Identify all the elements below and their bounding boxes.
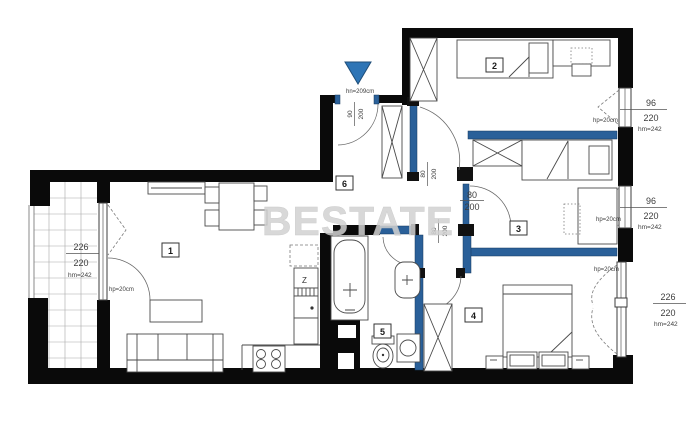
stove	[253, 346, 285, 372]
svg-text:hm=242: hm=242	[638, 224, 662, 231]
balcony-door-arc	[108, 258, 150, 300]
sink-dot	[310, 306, 313, 309]
svg-text:2: 2	[492, 61, 497, 71]
svg-text:6: 6	[342, 179, 347, 189]
wall-right-1	[618, 38, 633, 88]
svg-text:hm=242: hm=242	[68, 272, 92, 279]
bedroom-a-chair	[572, 64, 591, 76]
svg-text:1: 1	[168, 246, 173, 256]
toilet-dot	[382, 354, 384, 356]
entry-jamb-right	[374, 95, 379, 104]
svg-text:200: 200	[358, 108, 365, 119]
wall-top-bedrooms	[402, 28, 633, 38]
bedroom-a-pillow	[529, 43, 548, 73]
living-room-furniture	[127, 182, 267, 372]
sink-cabinet	[294, 296, 318, 318]
bedroom-b-desk	[578, 188, 617, 244]
svg-text:hp=20cm: hp=20cm	[593, 118, 618, 124]
wall-entry-right	[378, 95, 405, 103]
window-right-bottom	[617, 262, 626, 357]
sofa	[127, 334, 223, 372]
wall-top-living	[30, 170, 322, 182]
room-number-bedroom-c: 4	[465, 308, 482, 322]
duct-inset-1	[338, 325, 356, 338]
svg-text:226: 226	[73, 242, 88, 252]
chair-1	[205, 187, 219, 203]
hall-furniture	[382, 106, 402, 178]
watermark-text: BESTATE	[262, 198, 454, 244]
bedroom-c-drawer-2	[539, 352, 568, 369]
nightstand-right	[572, 356, 589, 369]
washing-machine	[397, 334, 420, 362]
balcony-railing	[29, 205, 34, 298]
wall-hall-left-upper	[320, 95, 333, 182]
window-right-bottom-opening-2	[592, 308, 617, 354]
bedroom-b-furniture	[473, 140, 617, 244]
wall-right-2	[618, 127, 633, 186]
coffee-table	[150, 300, 202, 322]
wall-left-lower	[97, 300, 110, 372]
svg-text:96: 96	[646, 98, 656, 108]
svg-text:220: 220	[73, 258, 88, 268]
wall-right-4	[613, 355, 633, 384]
svg-text:220: 220	[643, 113, 658, 123]
wall-pillar-a	[30, 170, 50, 206]
svg-text:3: 3	[516, 224, 521, 234]
svg-text:hp=20cm: hp=20cm	[596, 217, 621, 223]
window-left-opening	[108, 205, 126, 255]
duct-inset-2	[338, 353, 354, 369]
svg-text:200: 200	[431, 168, 438, 179]
svg-text:5: 5	[380, 327, 385, 337]
room-number-bedroom-b: 3	[510, 221, 527, 235]
entry-arrow-icon	[345, 62, 371, 84]
entry-door-size: 90 200	[347, 102, 365, 126]
svg-text:90: 90	[347, 110, 354, 118]
bedroom-c-drawer-1	[507, 352, 537, 369]
hinge-2	[407, 172, 419, 181]
hinge-7	[456, 268, 465, 278]
floor-plan: Z	[0, 0, 689, 432]
svg-text:220: 220	[660, 308, 675, 318]
svg-text:hm=242: hm=242	[654, 321, 678, 328]
entry-lintel-label: hn=209cm	[346, 89, 374, 95]
chair-2	[205, 210, 219, 226]
nightstand-left	[486, 356, 503, 369]
partition-corridor-right	[463, 235, 471, 273]
svg-text:220: 220	[643, 211, 658, 221]
svg-text:hp=20cm: hp=20cm	[594, 267, 619, 273]
bedroom-c-bed	[503, 285, 572, 357]
window-right-bottom-dims: 226 220 hm=242 hp=20cm	[594, 267, 686, 328]
svg-text:hp=20cm: hp=20cm	[109, 287, 134, 293]
kitchenette: Z	[242, 245, 320, 372]
entrance: hn=209cm 90 200	[345, 62, 374, 126]
room-number-hall: 6	[336, 176, 353, 190]
svg-text:4: 4	[471, 311, 476, 321]
bedroom-a-door-arc	[420, 107, 460, 170]
room-number-living: 1	[162, 243, 179, 257]
upper-cabinet-dashed	[290, 245, 318, 266]
fridge-label: Z	[302, 276, 307, 285]
svg-text:80: 80	[420, 170, 427, 178]
svg-text:hm=242: hm=242	[638, 126, 662, 133]
base-cabinet	[294, 318, 318, 344]
bedroom-c-furniture	[424, 285, 589, 371]
svg-text:80: 80	[467, 190, 477, 200]
window-right-bottom-handle	[615, 298, 627, 307]
dining-table	[219, 183, 254, 230]
bedroom-a-furniture	[410, 38, 610, 101]
partition-bedroom-b-top	[468, 131, 617, 139]
wall-entry-left	[320, 95, 337, 103]
hinge-4	[458, 224, 474, 236]
wall-pillar-b	[97, 170, 110, 203]
wall-right-3	[618, 228, 633, 262]
room-number-bedroom-a: 2	[486, 58, 503, 72]
svg-text:96: 96	[646, 196, 656, 206]
partition-hall-vertical	[410, 103, 417, 175]
bedroom-b-pillow	[589, 146, 609, 174]
svg-text:226: 226	[660, 292, 675, 302]
door-label-bedroom-a: 80 200	[420, 162, 438, 186]
wall-bottom	[28, 368, 633, 384]
floor-plan-page: Z	[0, 0, 689, 432]
room-number-bathroom: 5	[374, 324, 391, 338]
bedroom-a-desk	[553, 40, 610, 66]
partition-bedroom-b-bottom	[466, 248, 617, 256]
wall-balcony-left	[28, 298, 48, 372]
svg-text:200: 200	[464, 202, 479, 212]
entry-jamb-left	[335, 95, 340, 104]
